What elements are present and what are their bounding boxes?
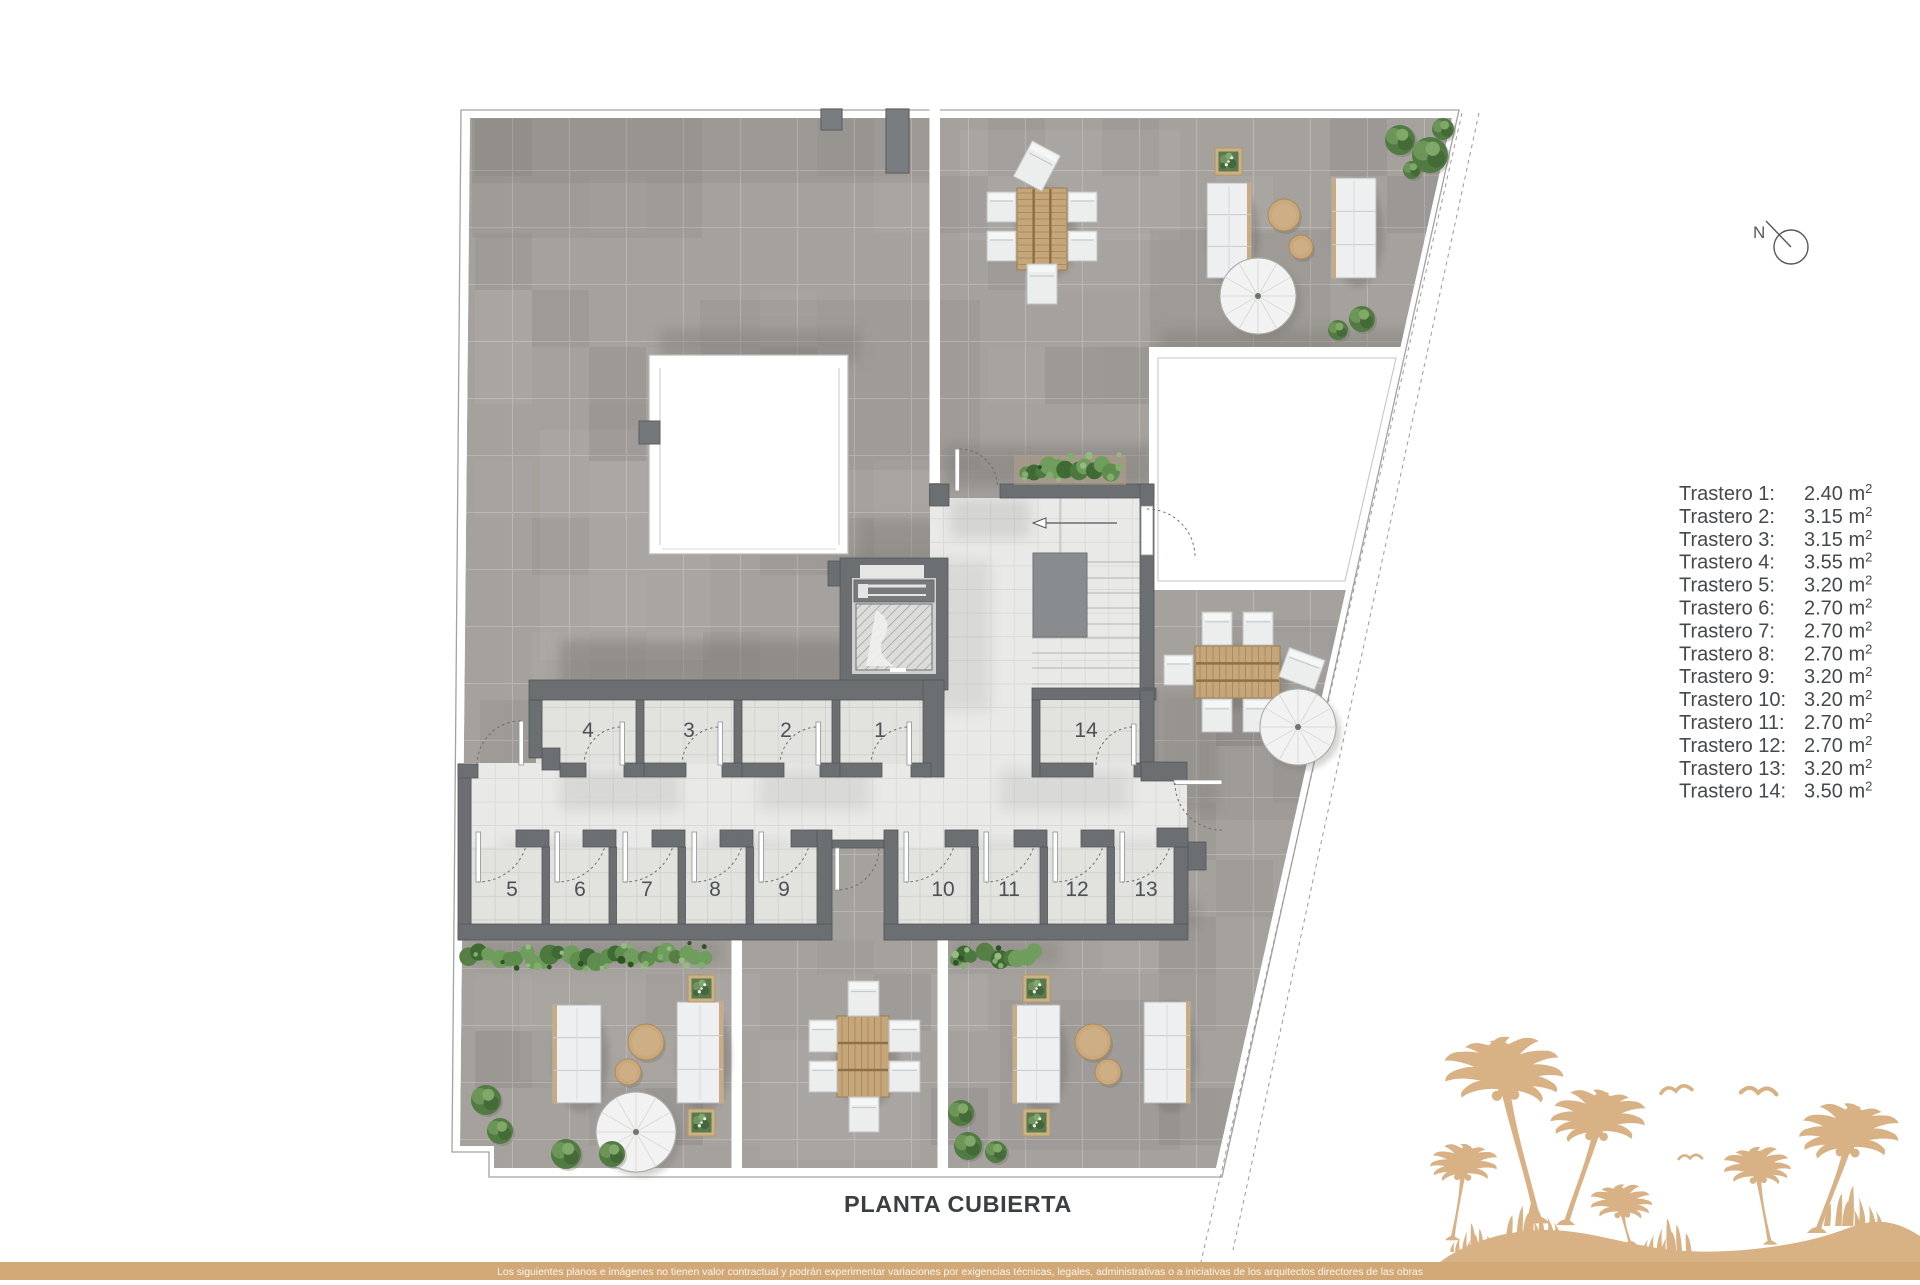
svg-text:Trastero 5:: Trastero 5: [1679,575,1775,597]
svg-text:Trastero 7:: Trastero 7: [1679,620,1775,642]
svg-text:Trastero 13:: Trastero 13: [1679,758,1786,780]
svg-text:13: 13 [1134,878,1157,901]
svg-text:3.50 m2: 3.50 m2 [1804,779,1872,803]
svg-text:11: 11 [998,878,1020,901]
svg-text:12: 12 [1065,878,1088,901]
svg-text:Trastero 11:: Trastero 11: [1679,712,1785,734]
svg-text:2.40 m2: 2.40 m2 [1804,481,1872,505]
svg-text:Trastero 8:: Trastero 8: [1679,643,1775,665]
svg-text:3.20 m2: 3.20 m2 [1804,687,1872,711]
svg-text:PLANTA CUBIERTA: PLANTA CUBIERTA [844,1191,1072,1217]
svg-text:2.70 m2: 2.70 m2 [1804,618,1872,642]
svg-text:Trastero 2:: Trastero 2: [1679,506,1775,528]
svg-text:Trastero 9:: Trastero 9: [1679,666,1775,688]
svg-text:14: 14 [1074,719,1098,742]
svg-text:4: 4 [582,719,594,742]
svg-text:8: 8 [709,878,721,901]
svg-text:Trastero 14:: Trastero 14: [1679,781,1786,803]
svg-text:9: 9 [778,878,790,901]
svg-text:2.70 m2: 2.70 m2 [1804,641,1872,665]
svg-text:3.20 m2: 3.20 m2 [1804,573,1872,597]
svg-text:1: 1 [874,719,886,742]
svg-text:2.70 m2: 2.70 m2 [1804,596,1872,620]
svg-text:3.20 m2: 3.20 m2 [1804,664,1872,688]
svg-text:Trastero 10:: Trastero 10: [1679,689,1786,711]
svg-text:Trastero 6:: Trastero 6: [1679,598,1775,620]
svg-text:Trastero 1:: Trastero 1: [1679,483,1775,505]
svg-text:3.55 m2: 3.55 m2 [1804,550,1872,574]
svg-text:10: 10 [931,878,954,901]
svg-text:2.70 m2: 2.70 m2 [1804,733,1872,757]
svg-text:2: 2 [780,719,792,742]
svg-text:Los siguientes planos e imágen: Los siguientes planos e imágenes no tien… [497,1267,1423,1278]
svg-text:6: 6 [574,878,586,901]
svg-text:3.15 m2: 3.15 m2 [1804,504,1872,528]
svg-text:7: 7 [641,878,653,901]
svg-text:3.20 m2: 3.20 m2 [1804,756,1872,780]
svg-text:3.15 m2: 3.15 m2 [1804,527,1872,551]
svg-text:Trastero 4:: Trastero 4: [1679,552,1775,574]
svg-text:2.70 m2: 2.70 m2 [1804,710,1872,734]
svg-text:Trastero 3:: Trastero 3: [1679,529,1775,551]
svg-text:Trastero 12:: Trastero 12: [1679,735,1786,757]
svg-text:N: N [1753,223,1765,242]
svg-text:3: 3 [683,719,695,742]
svg-text:5: 5 [506,878,518,901]
